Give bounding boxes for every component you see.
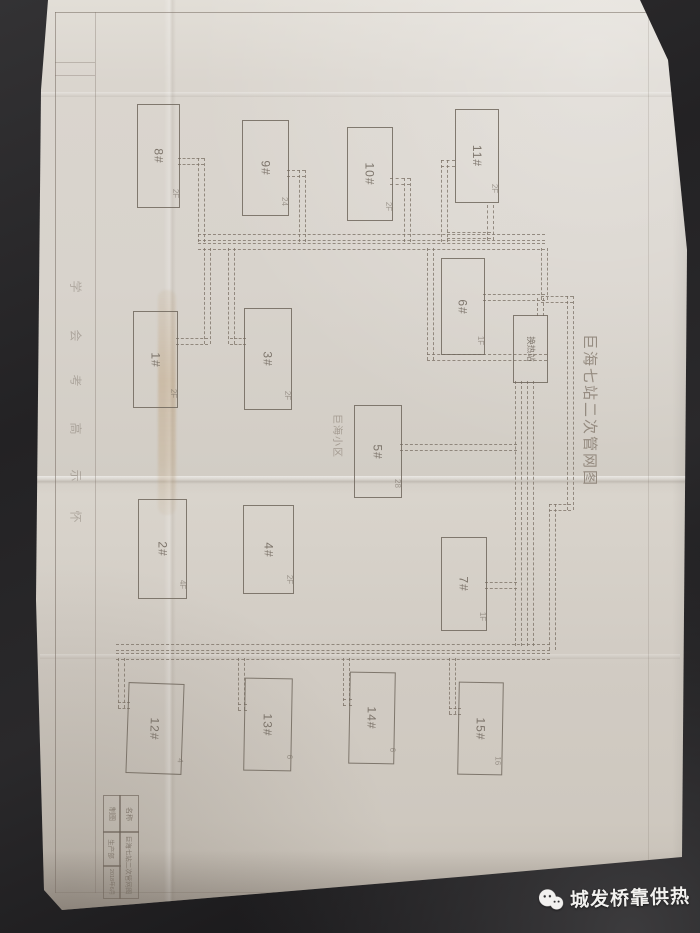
watermark-text: 城发桥靠供热 [570,881,691,912]
pipe-segment [116,653,550,660]
watermark: 城发桥靠供热 [538,881,691,913]
building-label: 换热站 [524,336,536,362]
pipe-segment [549,504,556,650]
building-sub-label: 6 [285,755,294,760]
building-label: 11# [470,145,484,167]
pipe-segment [176,338,208,345]
building-box: 换热站 [513,315,548,383]
building-label: 7# [457,576,471,591]
pipe-segment [116,644,550,651]
title-block-cell: 巨海七站二次管网图 [119,831,139,899]
building-box: 11#2F [455,109,499,203]
pipe-segment [198,158,205,242]
pipe-segment [427,248,434,360]
building-box: 14#6 [348,672,396,765]
margin-signature-char: 会 [68,329,85,341]
drawing-title: 巨海七站二次管网图 [580,334,601,487]
building-label: 12# [148,717,163,741]
building-box: 4#2F [243,505,294,594]
building-label: 6# [456,299,470,314]
building-label: 5# [371,444,385,459]
pipe-segment [567,296,574,510]
building-box: 15#16 [457,682,504,776]
margin-signature-char: 学 [68,280,85,292]
building-sub-label: 4F [178,580,187,589]
pipe-segment [204,248,211,344]
frame-left-outer [55,12,56,893]
building-box: 9#24 [242,120,289,216]
frame-header-line-1 [55,62,95,63]
pipe-segment [404,178,411,242]
photo-of-pipe-network-drawing: { "scene": { "watermark_text": "城发桥靠供热" … [0,0,700,933]
building-label: 9# [258,160,272,175]
building-label: 8# [151,148,165,163]
building-box: 2#4F [138,499,187,599]
building-box: 5#28 [354,405,402,498]
building-box: 7#1F [441,537,487,631]
margin-signature-char: 示 [68,469,85,481]
margin-signature-char: 怀 [68,510,85,522]
building-sub-label: 2F [285,575,294,584]
pipe-segment [400,444,517,451]
building-sub-label: 1F [478,612,487,621]
building-sub-label: 16 [493,756,502,765]
title-block-text: 制图 [107,807,117,821]
building-sub-label: 2F [171,189,180,198]
building-box: 1#2F [133,311,178,408]
pipe-segment [299,170,306,242]
area-label: 巨海小区 [331,414,346,458]
building-sub-label: 1F [476,336,485,345]
pipe-segment [541,248,548,300]
pipe-segment [537,298,544,316]
building-box: 12#4 [125,682,184,775]
pipe-segment [228,248,235,344]
building-box: 3#2F [244,308,292,410]
building-sub-label: 24 [280,197,289,206]
frame-right [648,12,649,860]
building-box: 8#2F [137,104,180,208]
pipe-segment [485,582,517,589]
title-block-text: 生产部 [107,839,117,859]
frame-left-inner [95,12,96,893]
margin-signature-char: 考 [68,374,85,386]
pipe-segment [198,234,545,241]
frame-header-line-2 [55,75,95,76]
building-sub-label: 4 [175,758,184,763]
building-sub-label: 2F [283,391,292,400]
building-sub-label: 28 [393,479,402,488]
title-block-text: 名称 [124,807,134,821]
title-block-text: 2018年6月 [108,869,116,895]
building-sub-label: 2F [490,184,499,193]
building-label: 10# [363,162,377,185]
pipe-segment [483,294,545,301]
building-label: 4# [261,542,275,557]
building-sub-label: 2F [384,202,393,211]
building-box: 6#1F [441,258,485,355]
pipe-segment [527,381,534,646]
pipe-segment [198,243,545,250]
building-label: 3# [261,351,275,366]
building-box: 10#2F [347,127,393,221]
building-box: 13#6 [243,678,293,772]
building-label: 1# [148,352,162,367]
building-sub-label: 6 [388,748,397,753]
crease-horizontal-top [40,92,680,97]
title-block-cell: 名称 [119,795,139,833]
pipe-segment [449,658,456,714]
title-block-text: 巨海七站二次管网图 [124,836,134,895]
wechat-icon [538,887,565,912]
pipe-segment [118,658,125,708]
pipe-segment [515,381,522,646]
margin-signature-char: 高 [68,422,85,434]
building-label: 15# [473,717,487,740]
building-label: 13# [261,713,275,736]
building-sub-label: 2F [169,389,178,398]
pipe-segment [441,160,448,242]
paper-sheet: 8#2F9#2410#2F11#2F1#2F3#2F6#1F换热站5#282#4… [0,0,700,933]
building-label: 2# [155,541,169,556]
building-label: 14# [365,706,379,729]
frame-top [55,12,648,13]
